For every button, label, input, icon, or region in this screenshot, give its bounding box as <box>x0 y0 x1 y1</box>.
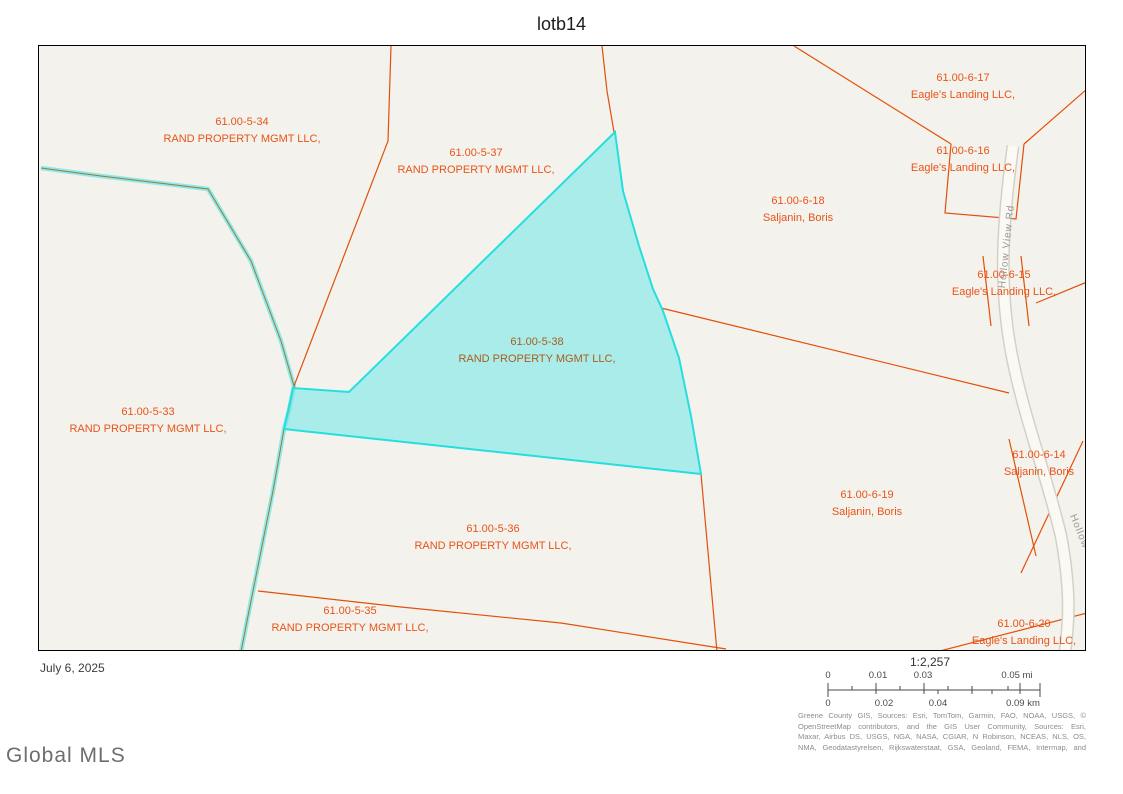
map-canvas[interactable]: 61.00-5-34RAND PROPERTY MGMT LLC,61.00-5… <box>38 45 1086 651</box>
page-title: lotb14 <box>0 14 1123 35</box>
scale-km-2: 0.04 <box>929 698 948 709</box>
map-date: July 6, 2025 <box>40 661 105 675</box>
scale-km-1: 0.02 <box>875 698 894 709</box>
parcel-map-graphics <box>39 46 1086 651</box>
scale-km-3: 0.09 km <box>1006 698 1040 709</box>
map-attribution: Greene County GIS, Sources: Esri, TomTom… <box>798 711 1086 753</box>
scale-mi-3: 0.05 mi <box>1001 670 1032 681</box>
scale-ruler <box>795 681 1055 697</box>
attribution-line: Maxar, Airbus DS, USGS, NGA, NASA, CGIAR… <box>798 732 1086 743</box>
subject-parcel-highlight <box>284 132 701 474</box>
scale-mi-0: 0 <box>825 670 830 681</box>
stream-line <box>41 168 294 651</box>
road-hollow-view <box>1003 146 1068 651</box>
attribution-line: Greene County GIS, Sources: Esri, TomTom… <box>798 711 1086 722</box>
attribution-line: OpenStreetMap contributors, and the GIS … <box>798 722 1086 733</box>
scale-mi-2: 0.03 <box>914 670 933 681</box>
page: { "window": { "title": "lotb14" }, "map"… <box>0 0 1123 794</box>
scale-km-0: 0 <box>825 698 830 709</box>
scalebar: 1:2,257 0 0.01 0.03 0.05 mi 0 0.02 0.04 … <box>795 655 1055 717</box>
attribution-line: NMA, Geodatastyrelsen, Rijkswaterstaat, … <box>798 743 1086 754</box>
global-mls-logo: Global MLS <box>6 744 126 768</box>
scale-ratio: 1:2,257 <box>805 655 1055 669</box>
scale-mi-1: 0.01 <box>869 670 888 681</box>
